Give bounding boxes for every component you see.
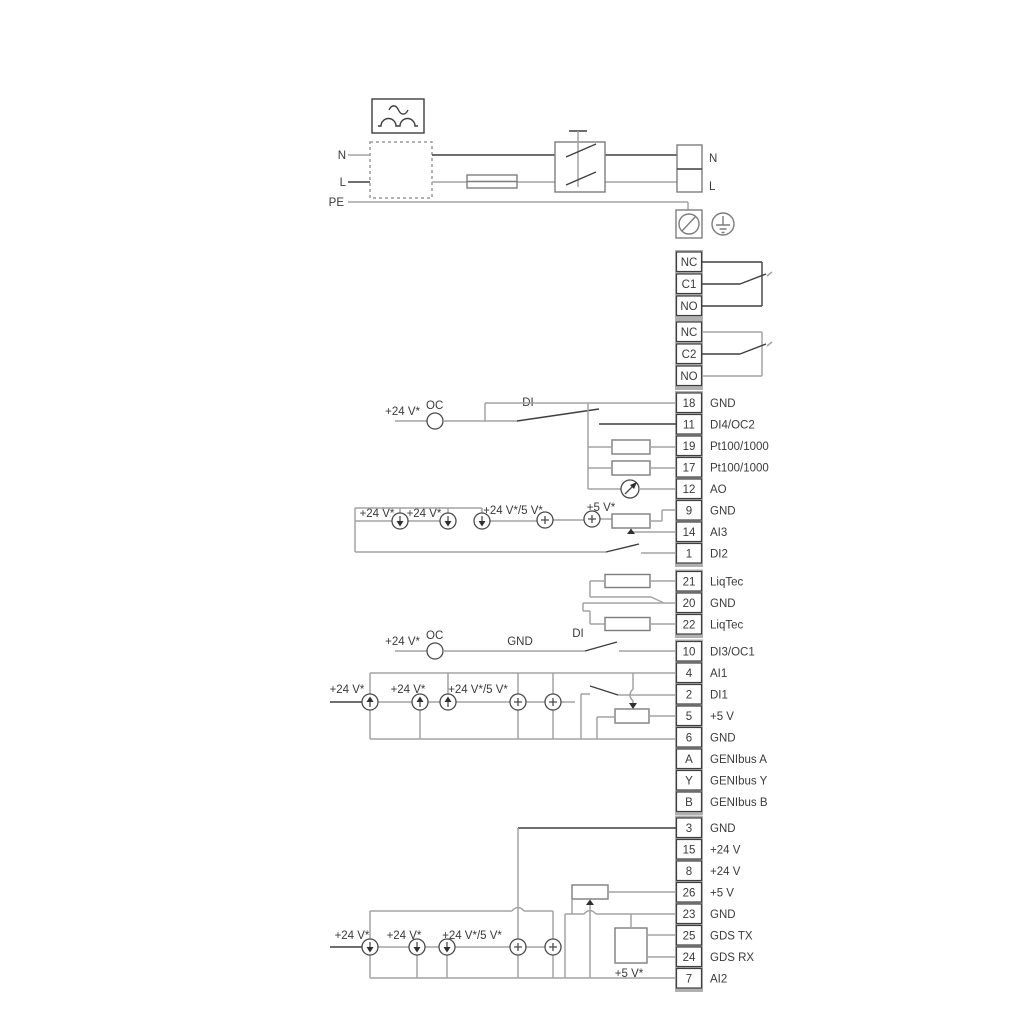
power-section: N L PE N L [329,99,734,238]
ai1-di1-circuit: +24 V* +24 V* +24 V*/5 V* [330,673,676,739]
relay2-contact-wires [702,332,772,376]
terminal-label: +5 V [710,711,734,723]
voltage-source-plus-icon [545,939,561,955]
ai2-gds-circuit: +24 V* +24 V* +24 V*/5 V* +5 V* [330,828,676,980]
resistor-icon [588,440,676,454]
oc-label: OC [426,630,443,642]
relay-cell-label: C1 [682,279,697,291]
terminal-cell: 26 +5 V [677,883,735,903]
terminal-number: 25 [683,931,696,943]
terminal-label: DI2 [710,549,728,561]
current-source-up-icon [362,694,378,710]
di-label: DI [572,628,584,640]
terminal-label: DI4/OC2 [710,420,755,432]
terminal-number: 6 [686,733,692,745]
di2-switch-icon [606,544,639,552]
terminal-label: +24 V [710,845,741,857]
terminal-cell: NC [677,322,702,342]
plus24v-label: +24 V* [385,406,420,418]
relay-cell-label: NC [681,257,698,269]
l-right-label: L [709,181,716,193]
terminal-number: 18 [683,398,696,410]
terminal-number: 23 [683,909,696,921]
fuse-icon [467,175,517,188]
current-source-down-icon [439,939,455,955]
terminal-number: 21 [683,577,696,589]
terminal-label: Pt100/1000 [710,463,769,475]
terminal-label: LiqTec [710,620,743,632]
terminal-cell: 18 GND [677,393,736,413]
terminal-cell: 22 LiqTec [677,615,744,635]
terminal-cell: 7 AI2 [677,969,728,989]
terminal-number: 4 [686,668,693,680]
terminal-cell: Y GENIbus Y [677,771,768,791]
terminal-number: 11 [683,420,695,432]
terminal-cell: NO [677,366,702,386]
terminal-cell: 8 +24 V [677,861,741,881]
l-left-label: L [340,177,347,189]
terminal-label: AI2 [710,974,727,986]
di4-oc2-circuit: +24 V* OC DI [385,397,676,498]
terminal-label: GDS TX [710,931,753,943]
terminal-cell: 11 DI4/OC2 [677,415,755,435]
current-source-down-icon [474,513,490,529]
terminal-cell: 3 GND [677,818,736,838]
terminal-label: GENIbus Y [710,776,768,788]
terminal-number: 2 [686,690,692,702]
terminal-number: 12 [683,484,696,496]
terminal-number: 15 [683,845,696,857]
wiring-diagram: N L PE N L [0,0,1024,1024]
terminal-label: DI1 [710,690,728,702]
potentiometer-icon [612,510,676,534]
current-source-down-icon [440,513,456,529]
terminal-cell: 10 DI3/OC1 [677,642,755,662]
gnd-label: GND [507,636,533,648]
terminal-number: 5 [686,711,692,723]
terminal-number: 26 [683,888,696,900]
terminal-number: 14 [683,527,696,539]
terminal-label: GND [710,733,736,745]
plus24v-label: +24 V* [330,684,365,696]
liqtec-sensor-wires [583,575,676,631]
sine-filter-icon [372,99,424,133]
relay-cell-label: C2 [682,349,697,361]
oc-label: OC [426,400,443,412]
relay1-contact-wires [702,262,772,306]
n-right-label: N [709,153,717,165]
terminal-cell: 9 GND [677,501,736,521]
open-collector-icon [427,643,443,659]
plus24v-5v-label: +24 V*/5 V* [483,505,543,517]
relay-cell-label: NO [680,301,697,313]
terminal-number: 10 [683,647,696,659]
terminal-cell: 21 LiqTec [677,572,744,592]
voltage-source-plus-icon [510,939,526,955]
terminal-cell: A GENIbus A [677,749,768,769]
terminal-label: +24 V [710,866,741,878]
terminal-number: 3 [686,823,692,835]
terminal-number: 9 [686,506,692,518]
terminal-number: 20 [683,598,696,610]
terminal-cell: B GENIbus B [677,792,768,812]
terminal-number: 24 [683,952,696,964]
plus24v-label: +24 V* [360,508,395,520]
terminal-strip-a: 18 GND 11 DI4/OC2 19 Pt100/1000 17 Pt100… [675,391,769,567]
analog-output-meter-icon [588,480,676,498]
terminal-number: 17 [683,463,696,475]
terminal-cell: 6 GND [677,728,736,748]
relay1-block: NC C1 NO [675,250,772,320]
terminal-cell: NO [677,296,702,316]
plus24v-5v-label: +24 V*/5 V* [448,684,508,696]
terminal-number: 8 [686,866,692,878]
current-source-down-icon [409,939,425,955]
wiper-arrow-icon [586,900,594,906]
terminal-label: AO [710,484,727,496]
mains-switch-icon [555,131,605,192]
terminal-label: GDS RX [710,952,754,964]
terminal-strip-d: 3 GND 15 +24 V 8 +24 V 26 +5 V 23 GND 25… [675,816,754,992]
terminal-cell: 12 AO [677,479,727,499]
mains-terminal-block: N L [677,145,717,193]
terminal-cell: 20 GND [677,593,736,613]
terminal-strip-liqtec: 21 LiqTec 20 GND 22 LiqTec [583,570,743,639]
wiring-diagram-canvas: N L PE N L [0,0,1024,1024]
terminal-cell: 17 Pt100/1000 [677,458,769,478]
potentiometer-icon [597,673,676,739]
resistor-icon [605,575,650,588]
terminal-label: LiqTec [710,577,743,589]
pe-screw-terminal-icon [676,210,702,238]
terminal-cell: 23 GND [677,904,736,924]
plus24v-label: +24 V* [385,636,420,648]
relay-cell-label: NO [680,371,697,383]
terminal-label: Pt100/1000 [710,441,769,453]
gds-sensor-box [615,914,676,963]
terminal-cell: 19 Pt100/1000 [677,436,769,456]
terminal-cell: 25 GDS TX [677,926,753,946]
terminal-label: GND [710,506,736,518]
terminal-number: 22 [683,620,696,632]
resistor-icon [588,461,676,475]
terminal-cell: NC [677,252,702,272]
plus24v-label: +24 V* [335,930,370,942]
ai3-di2-circuit: +24 V* +24 V* +24 V*/5 V* +5 V* [355,502,676,553]
terminal-cell: 5 +5 V [677,706,735,726]
terminal-label: +5 V [710,888,734,900]
n-left-label: N [338,150,346,162]
terminal-number: B [685,797,693,809]
voltage-source-plus-icon [545,694,561,710]
current-source-up-icon [412,694,428,710]
terminal-label: AI3 [710,527,727,539]
voltage-source-plus-icon [510,694,526,710]
resistor-icon [605,618,650,631]
terminal-label: GND [710,598,736,610]
terminal-cell: C2 [677,344,702,364]
terminal-label: GENIbus B [710,797,768,809]
relay2-block: NC C2 NO [675,320,772,390]
terminal-number: 1 [686,549,692,561]
current-source-down-icon [392,513,408,529]
terminal-label: GENIbus A [710,754,767,766]
voltage-source-plus-icon [537,512,553,528]
terminal-number: 19 [683,441,696,453]
terminal-cell: C1 [677,274,702,294]
terminal-strip-c: 10 DI3/OC1 4 AI1 2 DI1 5 +5 V 6 GND A GE… [675,640,768,816]
power-wires [348,155,688,210]
pe-label: PE [329,197,345,209]
di3-oc1-circuit: +24 V* OC GND DI [385,628,676,659]
terminal-label: GND [710,909,736,921]
relay-cell-label: NC [681,327,698,339]
open-collector-icon [427,413,443,429]
terminal-label: GND [710,398,736,410]
terminal-label: AI1 [710,668,727,680]
current-source-down-icon [362,939,378,955]
terminal-number: Y [685,776,693,788]
current-source-up-icon [440,694,456,710]
terminal-label: GND [710,823,736,835]
protective-earth-icon [712,213,734,235]
terminal-number: A [685,754,693,766]
voltage-source-plus-icon [584,511,600,527]
di-switch-icon [585,642,617,651]
terminal-cell: 15 +24 V [677,840,741,860]
drive-dashed-box [370,142,432,198]
terminal-cell: 24 GDS RX [677,947,755,967]
terminal-cell: 4 AI1 [677,663,728,683]
di-switch-icon [517,409,599,421]
terminal-cell: 14 AI3 [677,522,728,542]
terminal-label: DI3/OC1 [710,647,755,659]
terminal-number: 7 [686,974,692,986]
wiper-arrow-icon [629,703,637,709]
plus24v-label: +24 V* [407,508,442,520]
